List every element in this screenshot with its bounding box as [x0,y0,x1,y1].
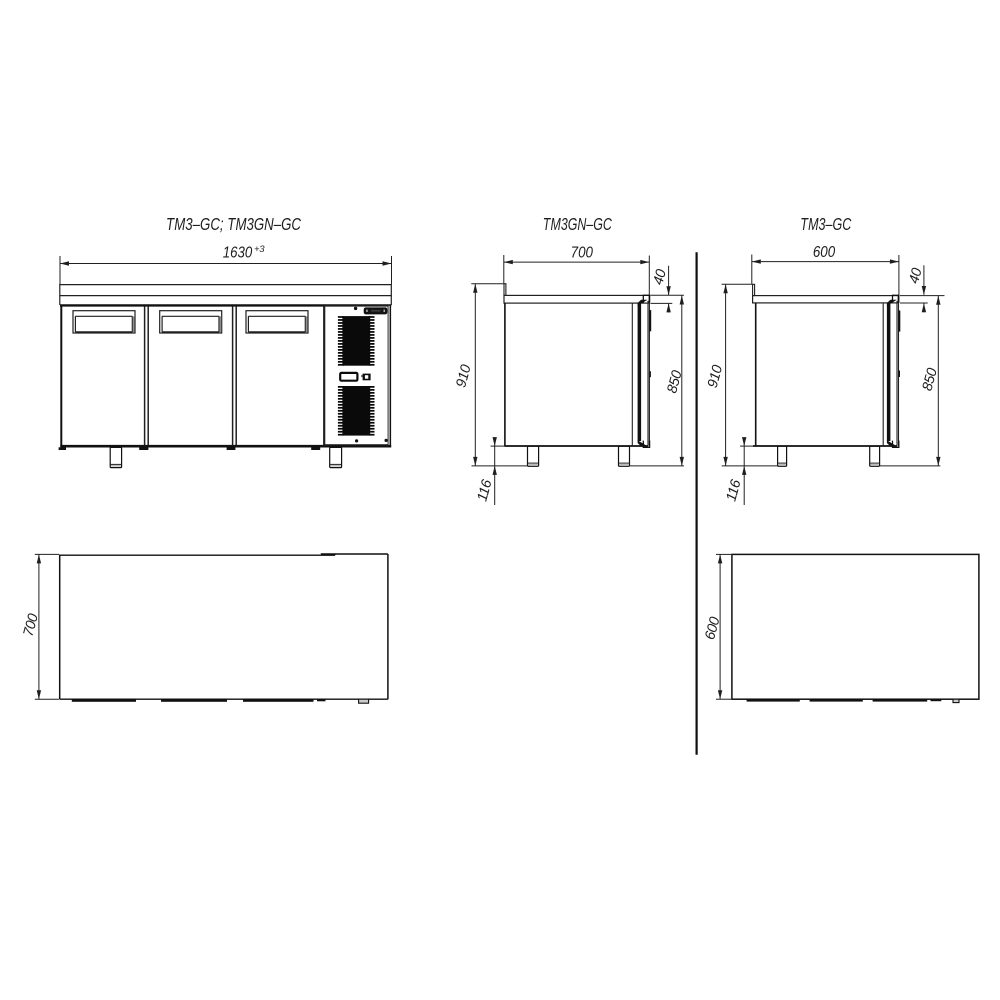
svg-text:+3: +3 [254,244,265,255]
svg-text:ТМ3GN–GC: ТМ3GN–GC [543,214,612,234]
svg-text:1630: 1630 [223,245,253,262]
svg-text:ТМ3–GC; ТМ3GN–GC: ТМ3–GC; ТМ3GN–GC [166,214,301,234]
svg-text:ТМ3–GC: ТМ3–GC [800,214,851,234]
svg-text:600: 600 [813,244,835,261]
svg-text:700: 700 [571,245,593,262]
